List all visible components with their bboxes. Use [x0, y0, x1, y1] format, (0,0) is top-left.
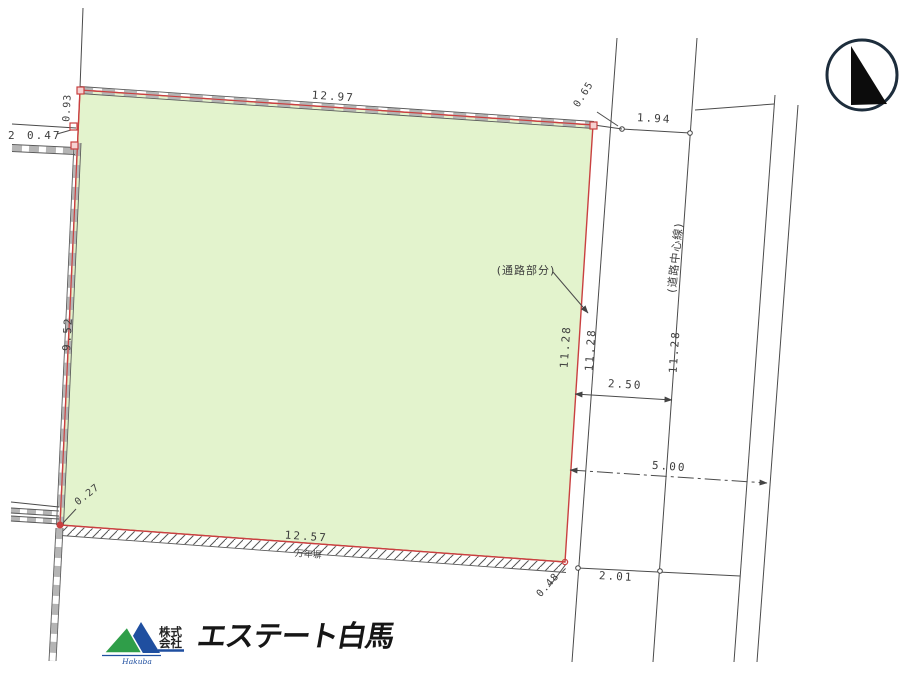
road-part-note: (通路部分) [497, 263, 556, 277]
dim-bottom-right-gap-label: 2.01 [599, 569, 634, 584]
road-far-line-1 [734, 95, 775, 662]
dim-road-half-label: 2.50 [608, 377, 643, 392]
road-center-note: (道路中心線) [664, 222, 685, 294]
site-plan-drawing: 12.97 0.93 2 0.47 9.52 0.65 1.94 11.28 1… [0, 0, 903, 676]
parcel [60, 90, 593, 562]
dim-top-right-gap-label: 1.94 [637, 111, 672, 126]
road-lines [572, 38, 798, 662]
dim-left-offset-label: 0.47 [27, 129, 62, 142]
logo-script-text: Hakuba [121, 657, 152, 666]
southwest-wall [49, 528, 63, 661]
land-survey-page: 12.97 0.93 2 0.47 9.52 0.65 1.94 11.28 1… [0, 0, 903, 676]
parcel-area [60, 90, 593, 562]
dim-left-upper-label: 0.93 [61, 94, 73, 123]
road-far-line-2 [757, 105, 798, 662]
dim-strip-2-label: 11.28 [583, 328, 599, 372]
company-name: エステート白馬 [195, 619, 397, 653]
north-boundary-line [80, 8, 83, 88]
north-arrow [827, 40, 897, 110]
dim-left-label: 9.52 [60, 316, 75, 351]
dim-strip-3-label: 11.28 [667, 330, 683, 374]
dim-top-label: 12.97 [311, 89, 355, 105]
dim-corner-bottom-right-label: 0.48 [535, 571, 562, 599]
dim-road-full-label: 5.00 [652, 459, 687, 474]
company-logo: Hakuba 株式 会社 エステート白馬 [102, 619, 397, 666]
southwest-neighbor-wall [11, 502, 59, 524]
dim-corner-top-right-label: 0.65 [572, 80, 596, 110]
dim-left-offset-prefix: 2 [8, 129, 17, 142]
logo-prefix-line2: 会社 [158, 636, 182, 650]
road-cross-line [695, 104, 774, 110]
